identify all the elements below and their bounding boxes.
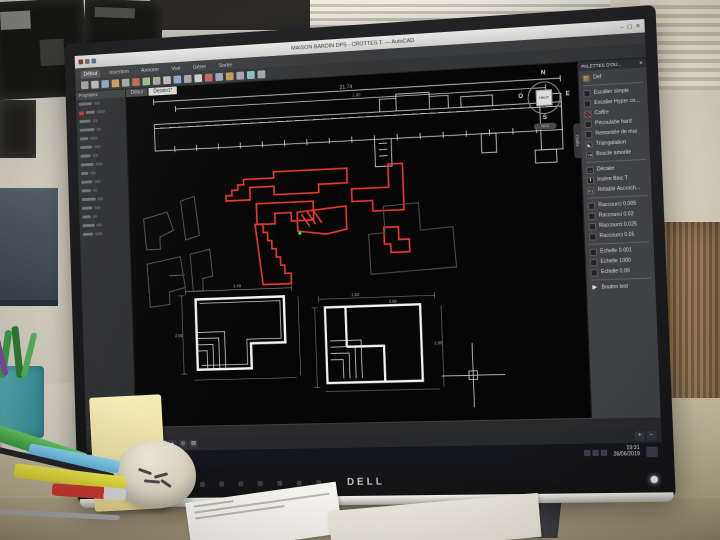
property-row[interactable] bbox=[80, 228, 130, 239]
quick-access-toolbar[interactable] bbox=[78, 58, 96, 64]
block-icon bbox=[583, 89, 591, 97]
toolbar-button-icon[interactable] bbox=[184, 74, 192, 82]
properties-rows bbox=[76, 97, 130, 239]
tool-label: Rétablir Accroch... bbox=[598, 185, 641, 193]
macro-icon bbox=[589, 222, 597, 229]
taskbar-clock[interactable]: 19:31 26/06/2019 bbox=[613, 446, 640, 458]
zoom-in-icon[interactable]: + bbox=[635, 431, 645, 441]
toolbar-button-icon[interactable] bbox=[112, 79, 120, 87]
toolbar-button-icon[interactable] bbox=[173, 75, 181, 83]
viewcube[interactable]: N O E S HAUT SCU bbox=[519, 69, 569, 129]
clock-date: 26/06/2019 bbox=[613, 451, 640, 458]
drawing-canvas[interactable]: DébutDessin1* bbox=[126, 62, 591, 427]
tool-palette-item[interactable]: F1Rétablir Accroch... bbox=[587, 183, 649, 196]
image-icon bbox=[583, 74, 591, 82]
plan-detail-right: 1.63 2.80 1.80 bbox=[311, 289, 445, 392]
macro-icon bbox=[588, 202, 596, 209]
power-led[interactable] bbox=[650, 476, 658, 483]
paperclip-tray bbox=[116, 440, 196, 508]
tool-palette-side-tab[interactable]: Outils bbox=[573, 123, 582, 158]
photo-scene: MAISON BARDIN DPS - CROTTES T. — AutoCAD… bbox=[0, 0, 720, 540]
f1-icon: F1 bbox=[587, 187, 595, 195]
poster-art bbox=[40, 39, 65, 66]
wall-poster bbox=[0, 100, 36, 158]
tr-icon: TR bbox=[586, 151, 594, 159]
offset-icon: ↔ bbox=[586, 166, 594, 174]
tool-label: Remontée de mur bbox=[595, 128, 637, 136]
dark-shelf bbox=[150, 0, 310, 30]
tool-label: Pécoulabe hard bbox=[595, 118, 632, 126]
notification-icon[interactable] bbox=[646, 446, 658, 457]
triangle-icon: ◣ bbox=[585, 141, 593, 149]
tool-label: Echelle 0.001 bbox=[600, 247, 632, 254]
toolbar-button-icon[interactable] bbox=[81, 81, 89, 89]
hatch-icon bbox=[584, 110, 592, 118]
block-icon bbox=[584, 100, 592, 108]
paperclip bbox=[138, 468, 152, 476]
tool-label: Coffre bbox=[594, 109, 608, 116]
plan-detail-left: 3.49 2.65 bbox=[173, 281, 300, 380]
block-icon bbox=[584, 120, 592, 128]
tool-label: Bouton test bbox=[601, 284, 628, 291]
poster-art bbox=[95, 7, 135, 18]
tool-palette-item[interactable]: TRBoucle amortie bbox=[586, 146, 648, 159]
toolbar-button-icon[interactable] bbox=[247, 70, 255, 78]
system-tray bbox=[584, 449, 607, 456]
scale-icon bbox=[590, 248, 598, 255]
crosshair-cursor bbox=[440, 342, 506, 408]
tool-palette-close-icon[interactable]: ✕ bbox=[639, 58, 643, 67]
tool-palette-items: DefEscalier simpleEscalier Hyper co...Co… bbox=[578, 67, 660, 418]
toolbar-button-icon[interactable] bbox=[226, 72, 234, 80]
toolbar-button-icon[interactable] bbox=[91, 80, 99, 88]
tool-palette[interactable]: PALETTES D'OU... ✕ DefEscalier simpleEsc… bbox=[577, 58, 661, 418]
tool-label: Décaler bbox=[597, 166, 615, 173]
close-button[interactable]: ✕ bbox=[635, 23, 640, 29]
text-icon: T bbox=[587, 176, 595, 184]
dim-label: 1.80 bbox=[434, 340, 443, 345]
toolbar-button-icon[interactable] bbox=[163, 76, 171, 84]
maximize-button[interactable]: ▢ bbox=[627, 23, 633, 29]
status-toggle-icon[interactable]: ▤ bbox=[189, 439, 198, 448]
dim-label: 21.74 bbox=[339, 84, 352, 91]
toolbar-button-icon[interactable] bbox=[132, 77, 140, 85]
dim-label: 2.80 bbox=[389, 299, 398, 304]
tool-palette-item[interactable]: Def bbox=[583, 69, 645, 83]
toolbar-button-icon[interactable] bbox=[257, 70, 265, 78]
tool-palette-item[interactable]: Raccourci 0.05 bbox=[589, 229, 651, 242]
t-shape-polygon bbox=[368, 201, 457, 274]
tool-label: Raccourci 0.005 bbox=[598, 201, 636, 209]
autocad-screen: MAISON BARDIN DPS - CROTTES T. — AutoCAD… bbox=[75, 19, 663, 469]
tool-palette-item[interactable]: Echelle 0.99 bbox=[590, 265, 652, 278]
outline-polygons bbox=[143, 196, 214, 308]
dim-label: 1.63 bbox=[351, 292, 360, 297]
viewcube-west[interactable]: O bbox=[518, 94, 523, 100]
dim-label: 2.65 bbox=[175, 333, 184, 338]
file-tab[interactable]: Début bbox=[126, 88, 148, 97]
zoom-out-icon[interactable]: − bbox=[646, 431, 656, 441]
toolbar-button-icon[interactable] bbox=[153, 76, 161, 84]
scale-icon bbox=[590, 269, 598, 276]
dell-logo: DELL bbox=[347, 476, 385, 488]
toolbar-button-icon[interactable] bbox=[205, 73, 213, 81]
tool-label: Triangulation bbox=[596, 139, 626, 147]
red-selected-plan[interactable] bbox=[225, 163, 411, 286]
paperclip bbox=[160, 479, 172, 488]
ucs-menu[interactable]: SCU bbox=[534, 123, 557, 130]
paperclip bbox=[144, 479, 160, 483]
network-icon[interactable] bbox=[592, 449, 599, 455]
toolbar-button-icon[interactable] bbox=[236, 71, 244, 79]
minimize-button[interactable]: – bbox=[620, 24, 623, 30]
tool-label: Raccourci 0.02 bbox=[599, 211, 634, 219]
arrow-up-icon[interactable] bbox=[584, 449, 591, 455]
viewcube-top-face[interactable]: HAUT bbox=[536, 89, 553, 106]
tool-label: Boucle amortie bbox=[596, 149, 631, 157]
toolbar-button-icon[interactable] bbox=[142, 77, 150, 85]
tool-label: Def bbox=[593, 74, 601, 81]
dim-label: 3.49 bbox=[233, 283, 242, 288]
storage-crate bbox=[0, 188, 58, 306]
macro-icon bbox=[588, 212, 596, 219]
macro-icon bbox=[589, 233, 597, 240]
tool-label: Escalier Hyper co... bbox=[594, 97, 640, 106]
arrow-icon: ▶ bbox=[591, 284, 599, 291]
viewcube-east[interactable]: E bbox=[566, 91, 570, 97]
wall-icon bbox=[585, 130, 593, 138]
tool-label: Raccourci 0.05 bbox=[599, 232, 634, 240]
paperclip bbox=[154, 472, 168, 479]
toolbar-button-icon[interactable] bbox=[215, 72, 223, 80]
color-swatch[interactable] bbox=[79, 111, 84, 115]
tool-label: Echelle 1000 bbox=[600, 258, 631, 265]
tool-label: Escalier simple bbox=[594, 88, 629, 96]
save-icon[interactable] bbox=[78, 59, 83, 64]
redo-icon[interactable] bbox=[91, 58, 96, 63]
viewcube-south[interactable]: S bbox=[521, 114, 569, 123]
elevation-drawing bbox=[154, 75, 564, 182]
tool-palette-item[interactable]: ▶Bouton test bbox=[591, 281, 653, 293]
poster-art bbox=[0, 10, 31, 30]
volume-icon[interactable] bbox=[601, 449, 608, 455]
undo-icon[interactable] bbox=[85, 59, 90, 64]
tool-label: Echelle 0.99 bbox=[601, 268, 630, 275]
toolbar-button-icon[interactable] bbox=[194, 74, 202, 82]
toolbar-button-icon[interactable] bbox=[101, 79, 109, 87]
toolbar-button-icon[interactable] bbox=[122, 78, 130, 86]
dim-label: 2.80 bbox=[352, 92, 361, 98]
tool-label: Insère Bloc T bbox=[597, 175, 628, 183]
tool-label: Raccourci 0.025 bbox=[599, 221, 637, 229]
scale-icon bbox=[590, 258, 598, 265]
